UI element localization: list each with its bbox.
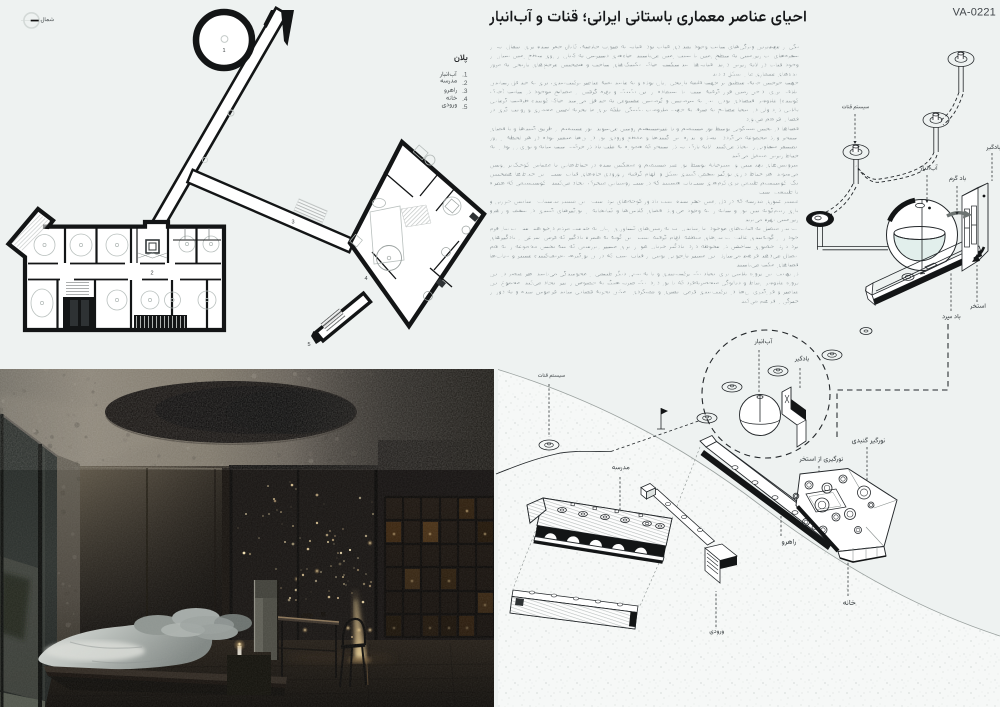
svg-text:5: 5 [307,342,310,348]
svg-text:1: 1 [222,48,225,54]
svg-text:4: 4 [364,276,367,282]
svg-text:3: 3 [291,220,294,226]
svg-text:2: 2 [150,271,153,277]
svg-text:.2: .2 [462,80,468,87]
svg-text:.1: .1 [462,71,468,78]
svg-text:.3: .3 [462,88,468,95]
svg-text:.5: .5 [462,104,468,111]
svg-text:VA-0221: VA-0221 [953,7,996,19]
svg-text:.4: .4 [462,96,468,103]
